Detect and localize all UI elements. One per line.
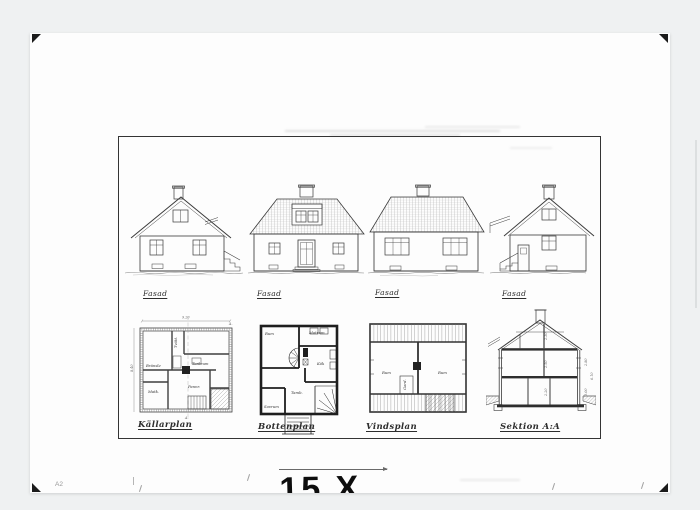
room-label-matrum: Matrum [308, 330, 325, 335]
room-label-tamb: Tamb. [291, 390, 303, 395]
plan-vindsplan: Rum Rum Gard. [362, 318, 474, 420]
sheet-code: A2 [55, 481, 63, 488]
room-label-kok: Kök [316, 361, 325, 366]
plate-number: 15 X [279, 469, 362, 493]
section-a-a-drawing: 2.30 2.50 2.20 2.80 3.00 6.10 [486, 308, 596, 424]
room-label-rum: Rum [264, 331, 274, 336]
caption-fasad-3: Fasad [375, 288, 399, 297]
plan-kallarplan: Bränsle Matk. Tvätt. Torkrum Pannr. 9.20… [130, 312, 242, 422]
pen-mark [641, 482, 644, 489]
caption-kallarplan: Källarplan [138, 420, 192, 430]
caption-sektion: Sektion A:A [500, 422, 560, 432]
room-label-torkrum: Torkrum [192, 361, 209, 366]
elevation-gable-right [488, 183, 600, 285]
room-label-bransle: Bränsle [145, 363, 161, 368]
scan-edge-artifact [695, 140, 697, 308]
elevation-gable-right-drawing [488, 183, 600, 285]
dim-right-upper: 2.80 [584, 358, 588, 367]
corner-mark-top-right [659, 34, 668, 43]
elevation-front-dormer [246, 183, 368, 285]
pen-mark [247, 474, 250, 481]
dim-total: 6.10 [590, 372, 594, 380]
caption-fasad-4: Fasad [502, 289, 526, 298]
caption-fasad-2: Fasad [257, 289, 281, 298]
pen-mark [552, 483, 555, 490]
elevation-front-dormer-drawing [246, 183, 368, 285]
elevation-gable-left [123, 183, 245, 285]
dim-ground: 2.50 [544, 360, 548, 369]
drawing-sheet: Fasad Fasad Fasad Fasad [30, 33, 670, 493]
corner-mark-bottom-left [32, 483, 41, 492]
corner-mark-top-left [32, 34, 41, 43]
room-label-rum-left: Rum [381, 370, 391, 375]
pen-tick [133, 477, 134, 485]
elevation-gable-left-drawing [123, 183, 245, 285]
caption-bottenplan: Bottenplan [258, 422, 315, 432]
plan-vindsplan-drawing: Rum Rum Gard. [362, 318, 474, 420]
room-label-sovrum: Sovrum [264, 404, 279, 409]
dim-basement: 2.20 [544, 388, 548, 397]
caption-fasad-1: Fasad [143, 289, 167, 298]
room-label-tvatt: Tvätt. [173, 337, 178, 348]
scan-smudge [460, 479, 520, 481]
dim-depth: 8.40 [130, 364, 134, 372]
section-mark-top: A. [228, 322, 233, 326]
dim-right-lower: 3.00 [584, 388, 588, 396]
scan-smudge [425, 126, 520, 128]
elevation-rear [366, 183, 488, 285]
pen-mark [139, 485, 142, 492]
section-drawing: 2.30 2.50 2.20 2.80 3.00 6.10 [486, 308, 596, 424]
room-label-matk: Matk. [147, 389, 159, 394]
room-label-gard: Gard. [402, 379, 407, 390]
dim-width: 9.20 [182, 316, 190, 320]
elevation-rear-drawing [366, 183, 488, 285]
scan-smudge [285, 130, 500, 132]
room-label-rum-right: Rum [437, 370, 447, 375]
corner-mark-bottom-right [659, 483, 668, 492]
plan-kallarplan-drawing: Bränsle Matk. Tvätt. Torkrum Pannr. 9.20… [130, 312, 242, 422]
scanned-page-background: Fasad Fasad Fasad Fasad [0, 0, 700, 510]
caption-vindsplan: Vindsplan [366, 422, 417, 432]
dim-attic: 2.30 [544, 332, 548, 341]
room-label-pannrum: Pannr. [187, 384, 200, 389]
